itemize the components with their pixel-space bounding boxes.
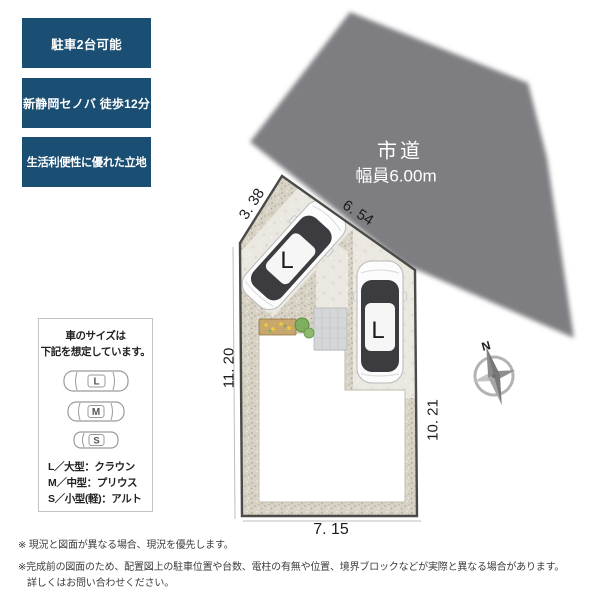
road-name-label: 市道: [377, 135, 423, 164]
dimension-right-edge: 10. 21: [425, 399, 442, 441]
terrace-tiles: [314, 308, 347, 350]
dimension-bottom-edge: 7. 15: [313, 521, 349, 539]
legend-item-large: L／大型：クラウン: [48, 459, 142, 475]
legend-item-small: S／小型(軽)：アルト: [48, 491, 142, 507]
car2-size-label: L: [371, 317, 384, 344]
legend-car-icon-medium: M: [67, 400, 125, 423]
footnote-pre-completion: ※完成前の図面のため、配置図上の駐車位置や台数、電柱の有無や位置、境界ブロックな…: [18, 558, 564, 573]
badge-location: 生活利便性に優れた立地: [22, 137, 151, 187]
compass: N: [463, 334, 523, 411]
dimension-left-edge: 11. 20: [221, 348, 238, 389]
legend-letter-l: L: [93, 376, 99, 387]
badge-station-access: 新静岡セノバ 徒歩12分: [22, 78, 151, 128]
car-size-legend: 車のサイズは 下記を想定しています。 L M S L／大型：クラウン M／中型：…: [38, 318, 153, 512]
planter: [259, 319, 296, 335]
road-width-label: 幅員6.00m: [355, 162, 436, 187]
site-plan-page: { "badges": [ { "label": "駐車2台可能" }, { "…: [0, 0, 600, 600]
car1-size-label: L: [280, 247, 293, 274]
footnote-contact: 詳しくはお問い合わせください。: [27, 574, 174, 589]
legend-car-icon-large: L: [63, 369, 129, 393]
footnote-current-state: ※ 現況と図面が異なる場合、現況を優先します。: [18, 536, 234, 551]
legend-item-medium: M／中型：プリウス: [48, 475, 142, 491]
legend-letter-m: M: [91, 407, 99, 418]
badge-parking: 駐車2台可能: [22, 18, 151, 68]
legend-title-line1: 車のサイズは: [65, 329, 125, 345]
legend-title-line2: 下記を想定しています。: [41, 345, 151, 361]
legend-letter-s: S: [93, 435, 99, 446]
legend-car-icon-small: S: [73, 430, 119, 450]
compass-north-label: N: [480, 338, 492, 354]
